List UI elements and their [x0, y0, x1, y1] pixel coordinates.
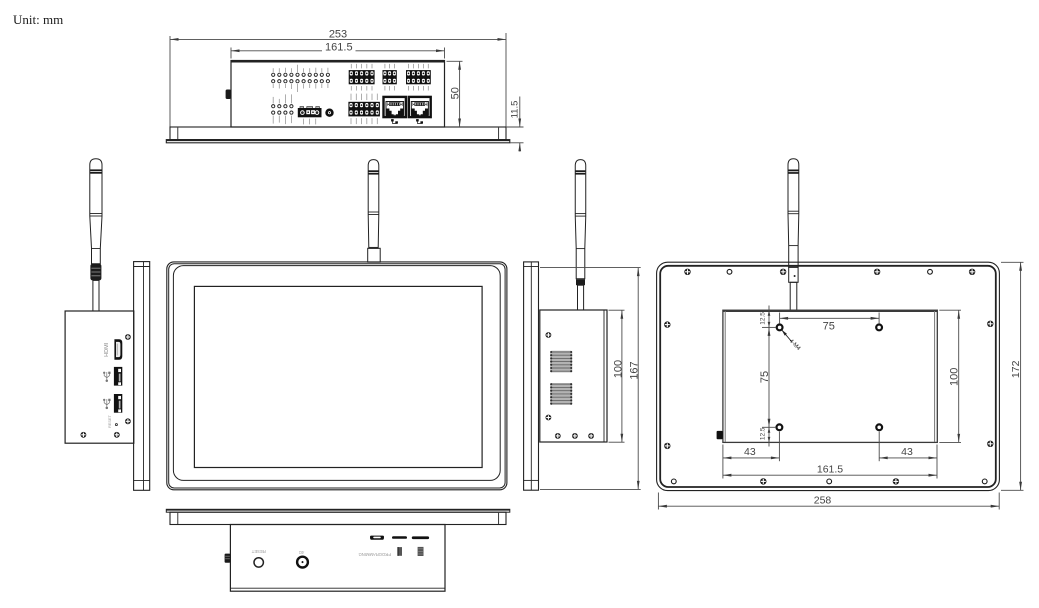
svg-text:43: 43 — [744, 446, 756, 458]
svg-text:161.5: 161.5 — [325, 42, 353, 54]
svg-text:43: 43 — [901, 446, 913, 458]
svg-text:167: 167 — [629, 361, 641, 379]
svg-text:172: 172 — [1010, 360, 1022, 378]
svg-text:11.5: 11.5 — [510, 101, 521, 119]
svg-text:Unit: mm: Unit: mm — [13, 12, 63, 27]
svg-text:100: 100 — [948, 368, 960, 386]
svg-text:253: 253 — [329, 28, 347, 40]
svg-text:12.5: 12.5 — [759, 427, 766, 440]
svg-text:PROGRAMMING: PROGRAMMING — [359, 552, 392, 557]
svg-text:75: 75 — [823, 321, 835, 333]
svg-text:RESET: RESET — [108, 414, 112, 427]
svg-text:258: 258 — [814, 494, 832, 506]
svg-text:12.5: 12.5 — [759, 312, 766, 325]
svg-text:50: 50 — [450, 87, 462, 99]
svg-text:4G: 4G — [299, 550, 305, 555]
svg-text:RESET: RESET — [251, 549, 265, 554]
svg-text:HDMI: HDMI — [104, 342, 110, 357]
svg-text:161.5: 161.5 — [817, 463, 843, 475]
svg-text:75: 75 — [759, 371, 771, 383]
svg-text:100: 100 — [612, 360, 624, 378]
